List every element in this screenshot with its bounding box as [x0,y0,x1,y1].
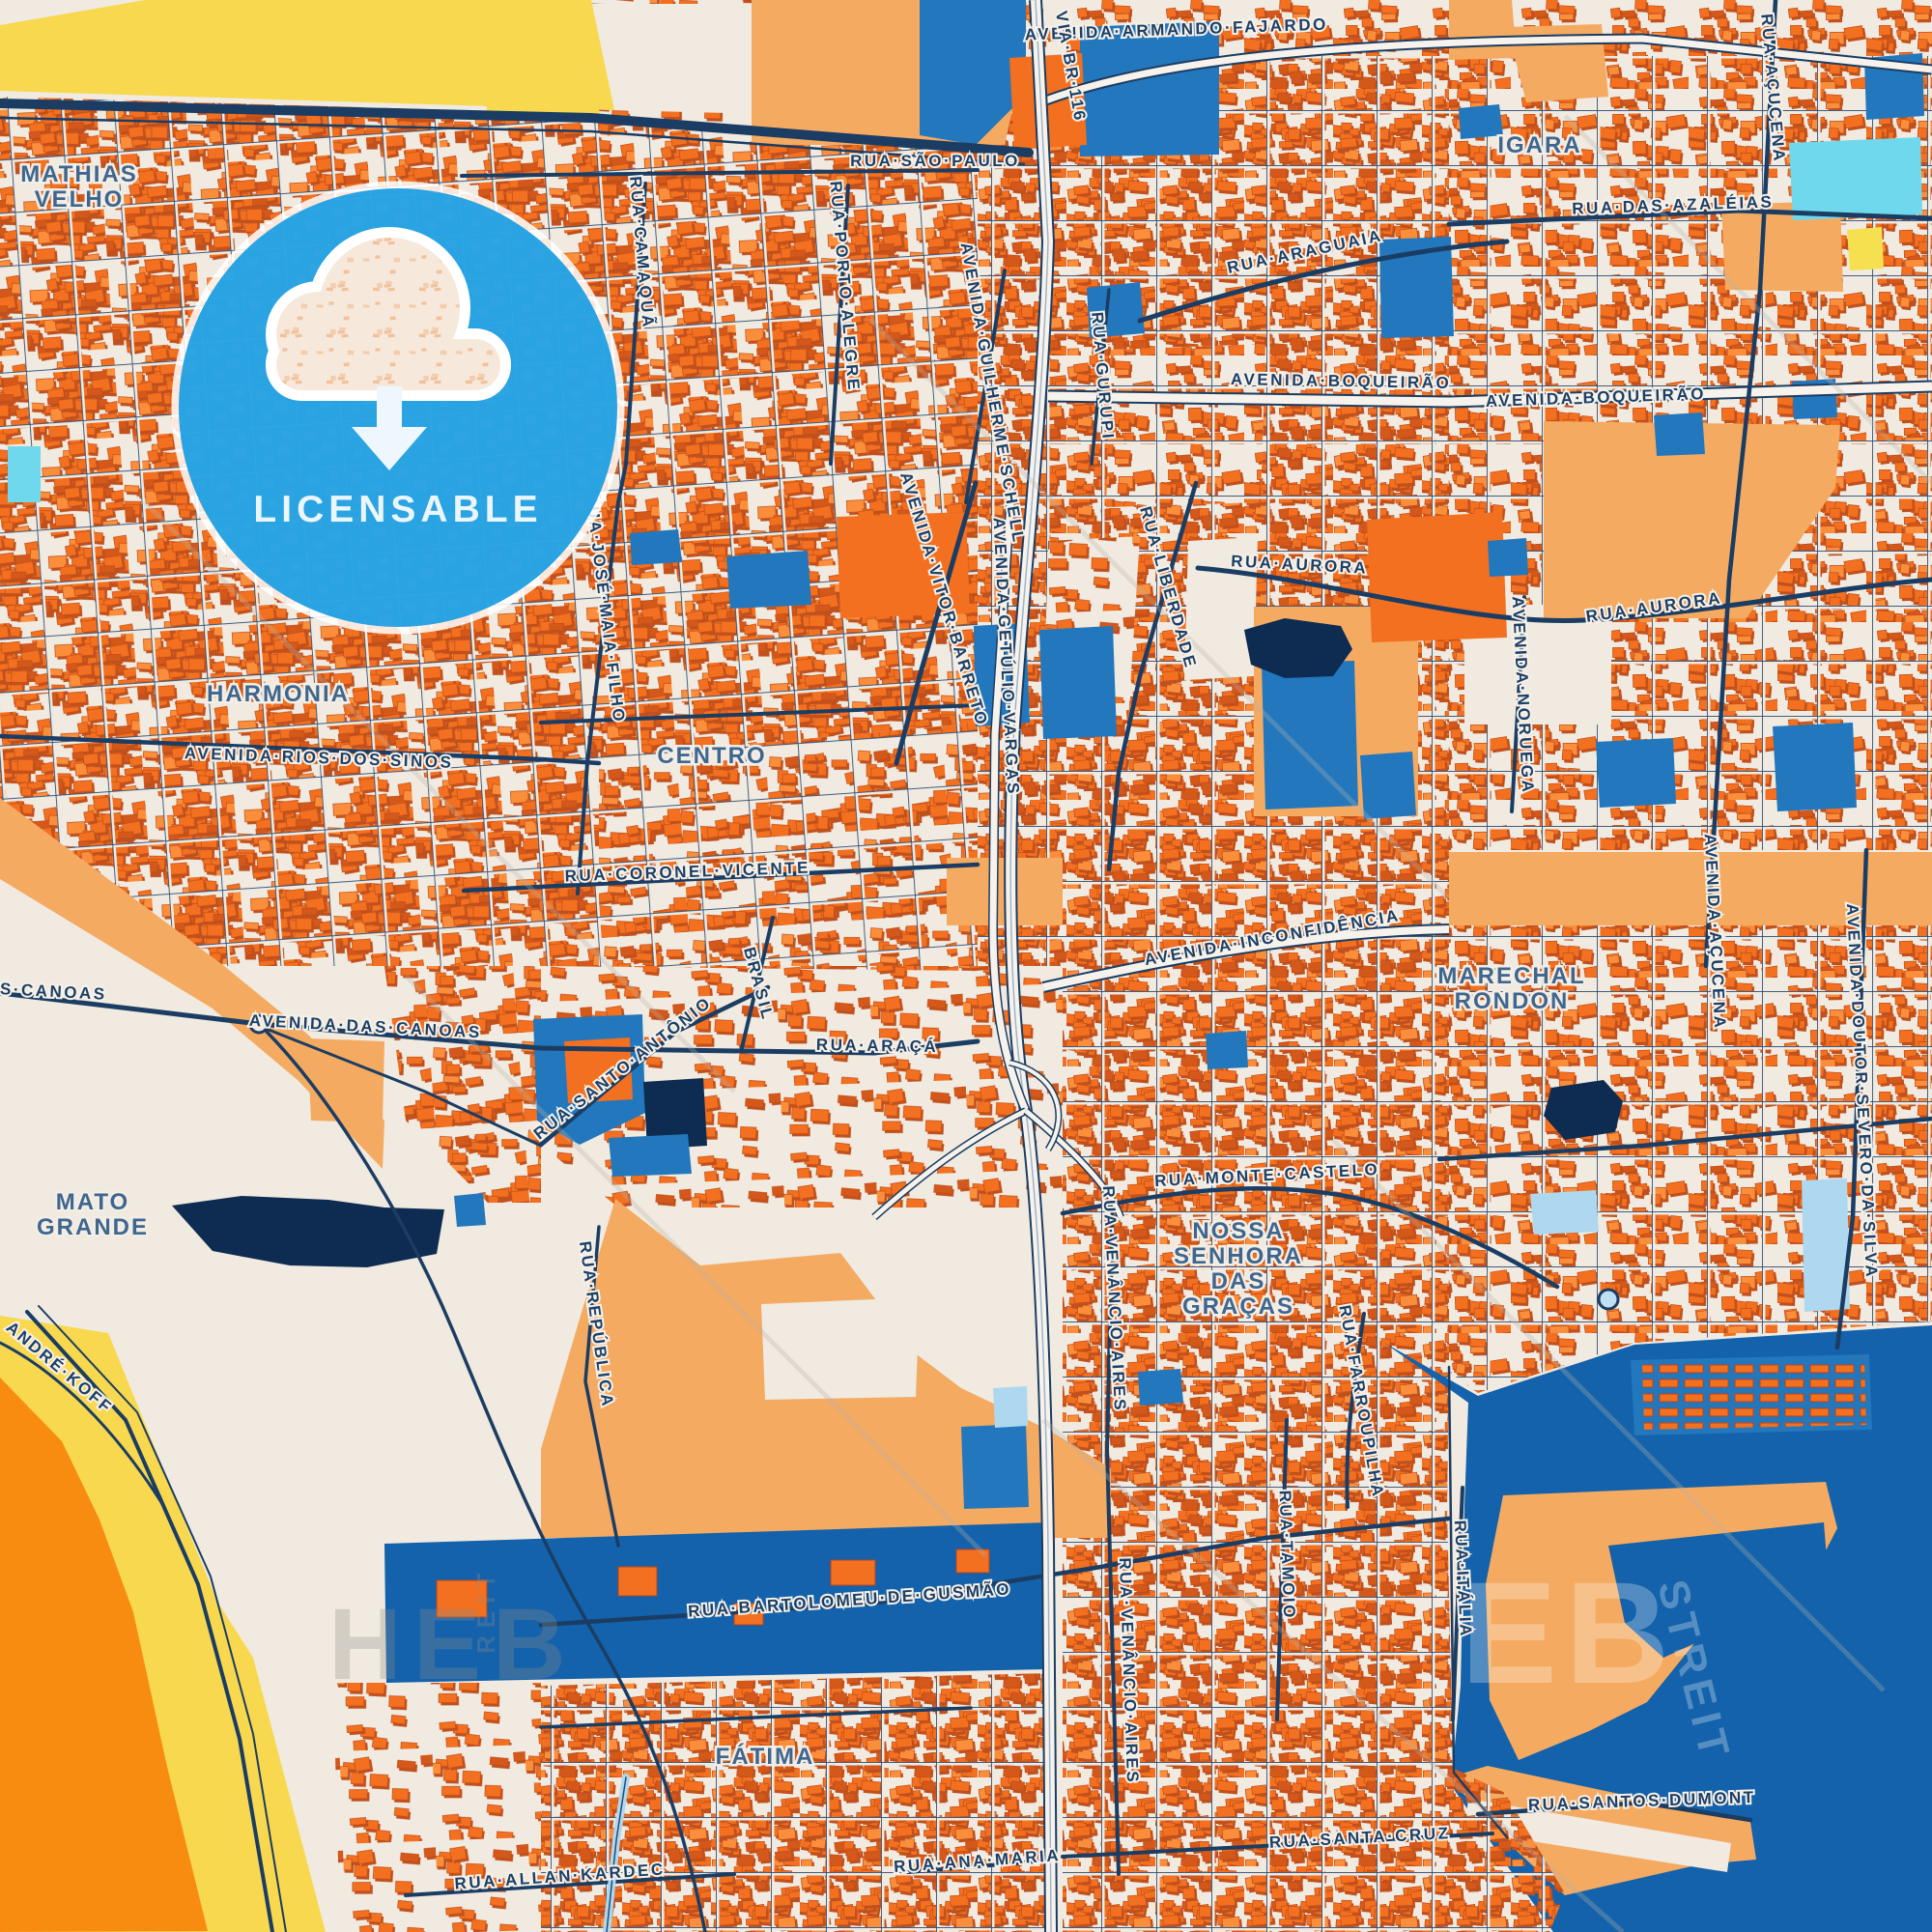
svg-text:MATHIASVELHO: MATHIASVELHO [20,161,138,213]
svg-text:AVENIDA·BOQUEIRÃO: AVENIDA·BOQUEIRÃO [1231,369,1452,392]
svg-text:REIT: REIT [471,1566,500,1654]
svg-text:RUA·SÃO·PAULO: RUA·SÃO·PAULO [850,151,1020,170]
svg-text:IGARA: IGARA [1497,132,1581,158]
svg-text:MARECHALRONDON: MARECHALRONDON [1437,963,1585,1014]
svg-text:CENTRO: CENTRO [657,743,766,769]
svg-text:FÁTIMA: FÁTIMA [716,1743,815,1770]
svg-text:EB: EB [1461,1551,1677,1714]
svg-text:HEB: HEB [328,1588,578,1701]
svg-text:LICENSABLE: LICENSABLE [253,489,542,530]
svg-text:NOSSASENHORADASGRAÇAS: NOSSASENHORADASGRAÇAS [1174,1218,1303,1320]
svg-text:HARMONIA: HARMONIA [207,681,350,707]
svg-text:RUA·ARAÇÁ: RUA·ARAÇÁ [816,1036,939,1056]
